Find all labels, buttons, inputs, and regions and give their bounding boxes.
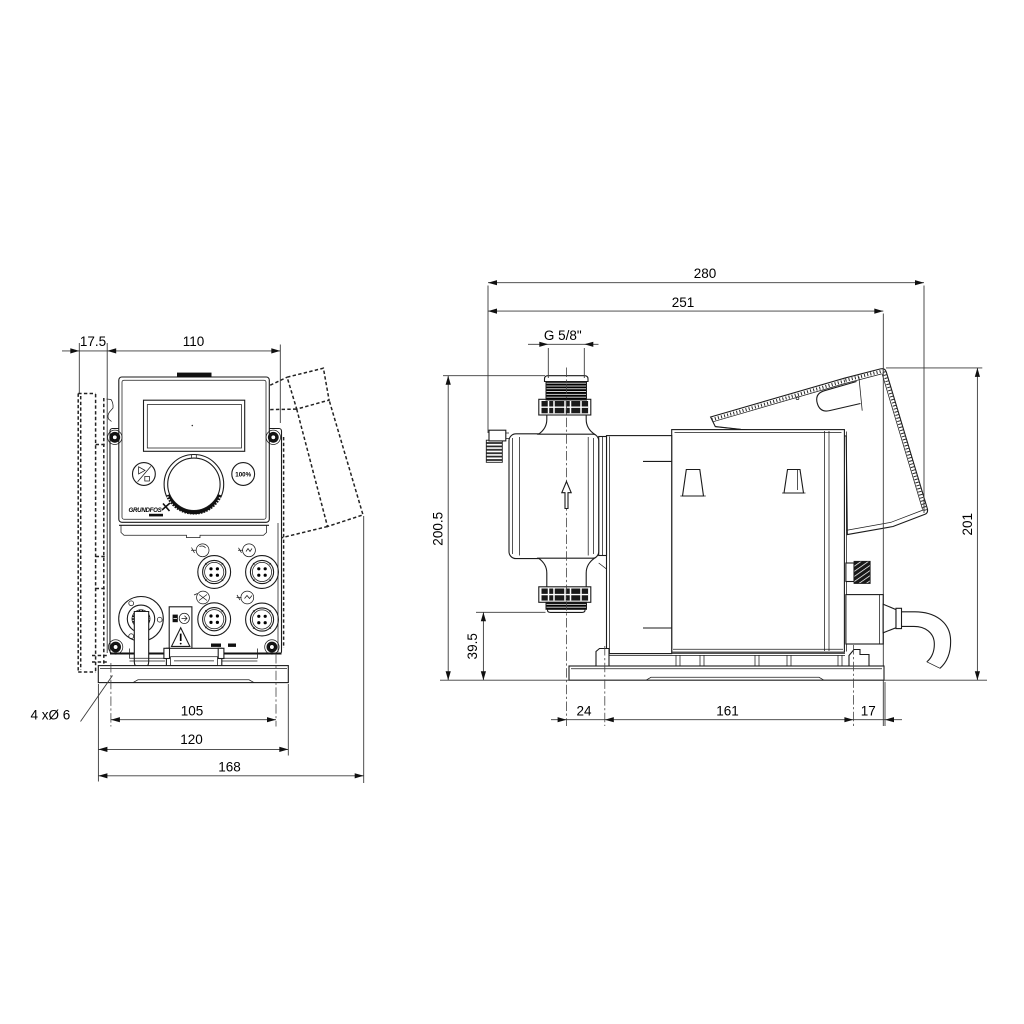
svg-text:105: 105 — [181, 704, 204, 719]
svg-text:200.5: 200.5 — [431, 512, 446, 546]
svg-text:GRUNDFOS: GRUNDFOS — [129, 507, 163, 514]
svg-text:100%: 100% — [235, 472, 251, 479]
svg-text:17: 17 — [861, 703, 876, 718]
svg-text:201: 201 — [960, 513, 975, 536]
svg-text:G 5/8": G 5/8" — [544, 328, 582, 343]
svg-text:161: 161 — [716, 703, 739, 718]
svg-text:168: 168 — [218, 759, 241, 774]
svg-text:4 xØ 6: 4 xØ 6 — [31, 708, 71, 723]
svg-text:110: 110 — [183, 334, 205, 349]
svg-text:251: 251 — [672, 295, 695, 310]
svg-text:120: 120 — [180, 732, 203, 747]
svg-text:17.5: 17.5 — [80, 334, 106, 349]
svg-text:24: 24 — [576, 703, 592, 718]
svg-text:39.5: 39.5 — [465, 633, 480, 659]
svg-text:280: 280 — [694, 266, 717, 281]
